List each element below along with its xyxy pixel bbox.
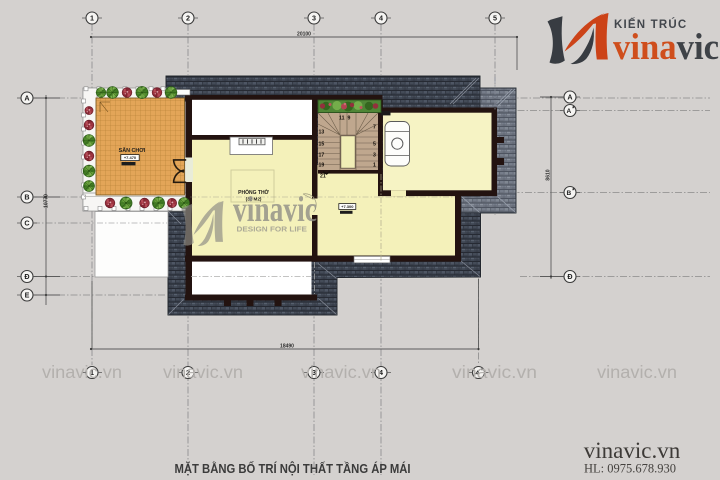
svg-text:13: 13: [319, 130, 325, 136]
svg-text:9: 9: [348, 116, 351, 122]
svg-text:1: 1: [90, 14, 94, 23]
svg-text:20100: 20100: [297, 32, 311, 38]
svg-text:11: 11: [339, 116, 345, 122]
svg-text:5: 5: [373, 142, 376, 148]
svg-text:vinavic.vn: vinavic.vn: [452, 362, 537, 382]
svg-text:C: C: [24, 219, 29, 228]
svg-text:HL: 0975.678.930: HL: 0975.678.930: [584, 462, 676, 476]
svg-text:DESIGN FOR LIFE: DESIGN FOR LIFE: [237, 225, 308, 234]
svg-text:B: B: [566, 190, 571, 197]
svg-text:2: 2: [186, 14, 190, 23]
svg-text:vinavic.vn: vinavic.vn: [584, 438, 681, 463]
svg-text:19: 19: [319, 163, 325, 169]
svg-text:vinavic: vinavic: [233, 189, 317, 229]
svg-text:18490: 18490: [280, 344, 294, 350]
svg-text:vinavic.vn: vinavic.vn: [597, 362, 677, 382]
svg-text:7: 7: [373, 125, 376, 131]
svg-text:1: 1: [373, 163, 376, 169]
svg-text:A: A: [566, 108, 571, 115]
svg-text:SÂN CHƠI: SÂN CHƠI: [119, 147, 146, 154]
svg-text:vinavic: vinavic: [613, 27, 719, 68]
svg-text:+7.470: +7.470: [124, 155, 137, 160]
svg-text:21: 21: [320, 174, 326, 180]
svg-text:5: 5: [493, 14, 497, 23]
svg-text:10770: 10770: [44, 194, 50, 208]
svg-text:3: 3: [312, 14, 316, 23]
svg-text:Đ: Đ: [567, 272, 572, 281]
svg-text:B: B: [24, 193, 29, 202]
svg-text:vinavic.vn: vinavic.vn: [301, 362, 381, 382]
svg-text:A: A: [24, 94, 29, 103]
svg-text:MẶT BẰNG BỐ TRÍ NỘI THẤT TẦNG: MẶT BẰNG BỐ TRÍ NỘI THẤT TẦNG ÁP MÁI: [175, 461, 411, 476]
svg-text:vinavic.vn: vinavic.vn: [163, 362, 243, 382]
svg-text:Đ: Đ: [24, 272, 29, 281]
svg-text:8610: 8610: [546, 169, 552, 180]
svg-text:3: 3: [373, 153, 376, 159]
svg-text:A: A: [567, 93, 572, 102]
svg-text:15: 15: [319, 142, 325, 148]
svg-text:+7.300: +7.300: [341, 204, 354, 209]
svg-text:4: 4: [379, 14, 383, 23]
svg-text:17: 17: [319, 153, 325, 159]
svg-text:vinavic.vn: vinavic.vn: [42, 362, 122, 382]
svg-text:E: E: [25, 291, 30, 300]
